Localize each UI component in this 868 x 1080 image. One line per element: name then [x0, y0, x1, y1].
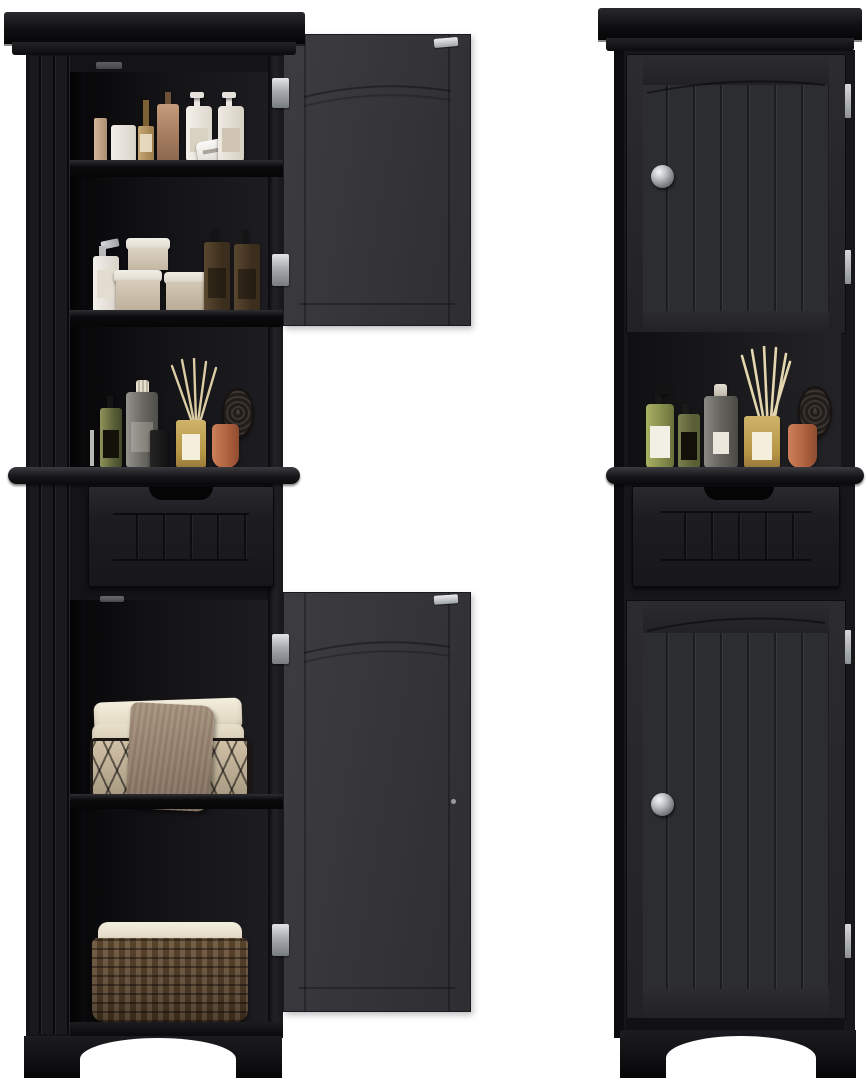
door-stile — [627, 55, 643, 333]
amber-bottle-1 — [204, 242, 230, 312]
chartreuse-bottle-label — [103, 430, 119, 458]
drawer-pull-cutout — [704, 487, 774, 500]
diffuser-label — [182, 434, 200, 460]
base-plinth — [620, 1030, 856, 1078]
door-stile — [829, 55, 845, 333]
door-arch-groove — [284, 593, 470, 673]
shelf-board-2 — [70, 310, 283, 327]
shelf-board-3 — [70, 794, 283, 809]
amber-label-1 — [208, 268, 226, 298]
base-plinth — [24, 1036, 282, 1078]
upper-door-closed — [626, 54, 846, 334]
door-arch-groove — [643, 69, 829, 99]
hinge — [845, 924, 851, 958]
door-knob — [651, 165, 674, 188]
jar-body-top — [128, 248, 168, 270]
mid-ledge — [8, 467, 300, 484]
base-arch-cutout — [80, 1038, 236, 1078]
white-lotion-bottle-2 — [218, 106, 244, 162]
lower-door-closed — [626, 600, 846, 1020]
mid-ledge — [606, 467, 864, 484]
hinge — [845, 630, 851, 664]
sage-pump-bottle — [646, 404, 674, 468]
shelf-board-1 — [70, 160, 283, 177]
door-stile — [627, 601, 643, 1019]
clear-bottle-label — [713, 432, 729, 454]
terracotta-cup — [212, 424, 239, 468]
hinge — [272, 924, 289, 956]
wicker-basket — [92, 938, 248, 1022]
diffuser-label — [752, 432, 772, 460]
drawer-beadboard — [113, 513, 249, 561]
magnet-catch — [96, 62, 122, 69]
lower-door-open — [283, 592, 471, 1012]
drawer-pull-cutout — [149, 487, 213, 500]
crown-molding-lip — [606, 38, 854, 51]
sage-bottle-label — [650, 426, 670, 458]
product-photo — [0, 0, 868, 1080]
beige-bottle — [94, 118, 107, 162]
clear-bottle — [704, 396, 738, 468]
lotion-pump-spout-2 — [222, 92, 236, 98]
gold-bottle — [138, 126, 154, 162]
beadboard-side-stile — [30, 56, 70, 1034]
drawer-closed-view — [632, 486, 840, 587]
knob-screw-hole — [451, 799, 456, 804]
drawer-beadboard — [661, 511, 811, 561]
door-frame-groove — [299, 987, 455, 989]
hinge — [272, 254, 289, 286]
interior-left-wall — [70, 72, 86, 468]
cabinet-closed-view — [560, 0, 868, 1080]
amber-bottle-2 — [234, 244, 260, 312]
chartreuse-bottle — [100, 408, 122, 468]
cabinet-open-view — [0, 0, 500, 1080]
lower-interior-left-wall — [70, 600, 86, 1024]
hinge — [845, 250, 851, 284]
lower-magnet-catch — [100, 596, 124, 602]
door-bottom-rail — [643, 311, 829, 333]
door-stile — [829, 601, 845, 1019]
reed-diffuser — [744, 416, 780, 468]
cabinet-floor — [70, 1022, 283, 1036]
door-beadboard-panel — [643, 85, 829, 311]
upper-door-open — [283, 34, 471, 326]
hinge — [272, 634, 289, 664]
small-dark-bottle — [150, 430, 168, 468]
hinge — [272, 78, 289, 108]
door-knob — [651, 793, 674, 816]
crown-molding-lip — [12, 42, 296, 55]
bronze-bottle — [157, 104, 179, 162]
door-frame-groove — [299, 303, 455, 305]
drawer-open-view — [88, 486, 274, 587]
lotion-pump-spout-1 — [190, 92, 204, 98]
door-arch-groove — [643, 603, 829, 637]
dispenser-label — [97, 270, 115, 298]
olive-bottle — [678, 414, 700, 468]
door-catch-plate — [434, 594, 459, 605]
base-arch-cutout — [666, 1036, 816, 1078]
gold-bottle-label — [140, 134, 152, 152]
amber-label-2 — [238, 269, 256, 299]
jar-body-left — [116, 280, 160, 312]
door-bottom-rail — [643, 989, 829, 1019]
green-pump-spout — [659, 388, 671, 394]
diffuser-reeds — [168, 358, 220, 424]
lotion-label-2 — [222, 128, 240, 152]
hinge — [845, 84, 851, 118]
reed-diffuser — [176, 420, 206, 468]
crown-molding — [4, 12, 305, 44]
shaver-slot — [203, 148, 219, 155]
side-panel-edge — [614, 50, 624, 1038]
white-jar — [111, 125, 136, 162]
terracotta-cup — [788, 424, 817, 468]
olive-bottle-label — [681, 432, 697, 460]
edge-highlight — [90, 430, 94, 466]
crown-molding — [598, 8, 862, 40]
